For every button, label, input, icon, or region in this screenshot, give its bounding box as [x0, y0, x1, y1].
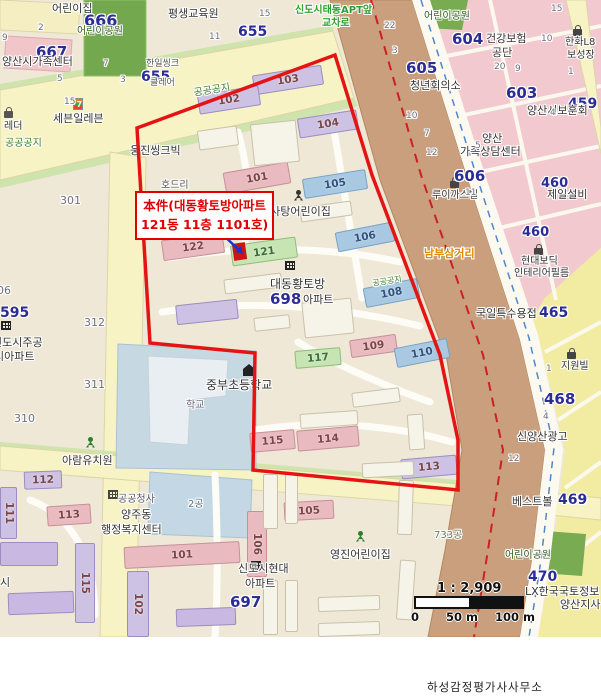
building-footprint [407, 413, 425, 450]
map-label: 606 [454, 168, 485, 185]
map-label: 11 [209, 33, 220, 43]
map-canvas[interactable]: 1031021041011051221211061081091101171151… [0, 0, 601, 637]
building-number: 101 [245, 170, 269, 186]
building-number: 109 [362, 339, 385, 354]
map-label: 아파트 [245, 578, 275, 590]
building-number: 113 [58, 508, 81, 522]
map-label: 655 [238, 25, 267, 40]
apartment-icon [1, 321, 11, 330]
map-label: 양산시가족센터 [2, 56, 73, 68]
map-label: 세븐일레븐 [53, 113, 104, 125]
map-label: 학교 [186, 400, 204, 411]
map-label: 7 [103, 60, 109, 70]
scale-bar-black [469, 598, 522, 607]
map-label: 평생교육원 [168, 8, 219, 20]
daycare-person-icon [294, 190, 303, 201]
shop-bag-icon [534, 248, 543, 255]
map-label: 양산시보훈회 [527, 105, 588, 117]
building-number: 114 [317, 432, 340, 446]
building-footprint [318, 621, 380, 637]
map-label: 312 [84, 317, 105, 329]
map-label: 한화L8 [565, 37, 595, 48]
map-label: 697 [230, 594, 261, 611]
map-label: 3 [120, 76, 126, 86]
building-footprint [397, 480, 414, 535]
building-number: 122 [181, 239, 204, 254]
map-label: 어린이공원 [505, 550, 551, 561]
map-label: 469 [558, 493, 587, 508]
building-111: 111 [0, 487, 17, 539]
building-number: 102 [132, 593, 144, 615]
appraisal-map-page: 1031021041011051221211061081091101171151… [0, 0, 601, 700]
map-label: 595 [0, 306, 29, 321]
building-115: 115 [75, 543, 95, 623]
map-label: 5 [475, 142, 481, 152]
map-label: 신도시태동APT앞 [295, 5, 372, 16]
map-label: 1 [568, 68, 574, 78]
map-label: 웅진씽크빅 [130, 145, 181, 157]
scale-tick-0: 0 [411, 610, 419, 624]
map-label: 9 [515, 65, 521, 75]
building-number: 108 [380, 285, 404, 301]
subject-annotation-box: 本件(대동황토방아파트 121동 11층 1101호) [135, 191, 274, 240]
map-label: 2 [38, 24, 44, 34]
kindergarten-person-icon [86, 437, 95, 448]
map-label: 공공청사 [118, 494, 155, 505]
map-label: 5 [57, 75, 63, 85]
map-label: 15 [64, 98, 75, 108]
building-number: 115 [79, 572, 91, 594]
building-number: 105 [298, 504, 321, 517]
map-label: 공공공지 [5, 138, 42, 149]
scale-bar-white [416, 598, 469, 607]
building-102: 102 [127, 571, 149, 637]
map-label: 양주동 [121, 509, 151, 521]
map-label: 2공 [188, 499, 204, 510]
building-footprint [263, 474, 278, 529]
map-label: 311 [84, 379, 105, 391]
map-label: 영진어린이집 [330, 549, 391, 561]
scale-ratio: 1 : 2,909 [437, 581, 501, 596]
building-number: 110 [410, 345, 434, 361]
map-label: 604 [452, 31, 483, 48]
building-number: 112 [32, 474, 54, 487]
building-113: 113 [46, 503, 91, 526]
map-label: 605 [406, 60, 437, 77]
shop-bag-icon [573, 29, 582, 36]
map-label: 733공 [434, 530, 462, 541]
map-label: 현대보딕 [521, 256, 558, 267]
map-label: 310 [14, 413, 35, 425]
map-label: 어린이공원 [424, 11, 470, 22]
map-label: 15 [551, 5, 562, 15]
map-label: 인테리어필름 [514, 268, 569, 279]
scale-bar [414, 596, 524, 609]
subject-annotation-line2: 121동 11층 1101호) [141, 215, 268, 234]
map-label: 12 [426, 149, 437, 159]
building-footprint [8, 591, 75, 615]
building-footprint [176, 607, 237, 627]
map-label: 레더 [4, 121, 22, 132]
map-label: 가족상담센터 [460, 146, 521, 158]
building-number: 113 [418, 460, 441, 474]
map-label: 15 [259, 10, 270, 20]
map-label: 남부삼거리 [424, 248, 475, 260]
building-number: 115 [261, 434, 284, 448]
map-label: 클레어 [150, 79, 175, 89]
building-112: 112 [24, 470, 63, 489]
building-number: 106 [353, 229, 377, 245]
map-label: 3 [392, 47, 398, 57]
map-label: 11 [465, 189, 476, 199]
map-label: 아파트 [303, 294, 333, 306]
map-label: 10 [406, 112, 417, 122]
building-number: 117 [307, 351, 330, 365]
apartment-icon [285, 261, 295, 270]
building-number: 105 [323, 176, 347, 191]
building-footprint [250, 120, 300, 167]
scale-tick-50: 50 m [446, 610, 478, 624]
scale-indicator: 1 : 2,909 0 50 m 100 m [410, 581, 580, 625]
map-label: 베스트볼 [512, 496, 552, 508]
map-label: 시 [0, 577, 10, 589]
map-label: 제일설비 [547, 189, 587, 201]
shop-bag-icon [4, 111, 13, 118]
map-label: 10 [541, 35, 552, 45]
map-label: 신양산광고 [517, 431, 568, 443]
map-label: 22 [384, 22, 395, 32]
map-label: 468 [544, 391, 575, 408]
map-label: 건강보험 [486, 33, 526, 45]
building-footprint [285, 474, 298, 524]
building-footprint [285, 580, 298, 632]
map-label: 20 [494, 63, 505, 73]
map-label: 06 [0, 285, 11, 297]
map-label: 460 [522, 226, 549, 240]
map-label: 9 [2, 34, 8, 44]
building-115: 115 [249, 429, 296, 453]
daycare-person-icon [356, 531, 365, 542]
building-number: 103 [276, 72, 300, 87]
school-icon [243, 369, 255, 376]
map-label: 신도시현대 [238, 563, 289, 575]
map-label: 행정복지센터 [101, 524, 162, 536]
map-label: 아람유치원 [62, 455, 113, 467]
building-footprint [318, 595, 380, 612]
building-number: 121 [252, 244, 275, 259]
map-label: 4 [543, 413, 549, 423]
map-label: 시아파트 [0, 351, 34, 363]
map-label: 1 [546, 365, 552, 375]
map-label: 한일씽크 [146, 60, 179, 70]
building-footprint [0, 542, 58, 566]
map-label: 어린이공원 [77, 26, 123, 37]
map-label: 4 [550, 109, 556, 119]
appraiser-attribution: 하성감정평가사사무소 [427, 679, 543, 695]
map-label: 698 [270, 291, 301, 308]
map-label: 호드리 [161, 180, 189, 191]
subject-annotation-line1: 本件(대동황토방아파트 [141, 196, 268, 215]
scale-tick-100: 100 m [495, 610, 535, 624]
map-label: 청년회의소 [410, 80, 461, 92]
map-label: 301 [60, 195, 81, 207]
building-number: 111 [3, 502, 15, 524]
map-label: 국일특수용접 [476, 308, 537, 320]
map-label: 양산 [482, 133, 502, 145]
government-office-icon [108, 490, 118, 499]
shop-bag-icon [567, 352, 576, 359]
map-label: 465 [539, 306, 568, 321]
map-label: 603 [506, 85, 537, 102]
map-label: 12 [508, 455, 519, 465]
map-label: 7 [424, 130, 430, 140]
map-label: 보성장 [567, 50, 595, 61]
map-label: 지원빌 [561, 361, 589, 372]
building-footprint [362, 461, 415, 479]
map-label: 공단 [492, 47, 512, 59]
map-label: 중부초등학교 [206, 379, 272, 392]
map-label: 교차로 [322, 18, 350, 29]
building-number: 101 [171, 548, 194, 561]
building-number: 104 [316, 116, 340, 131]
building-number: 106 [251, 533, 263, 555]
map-label: 신도시주공 [0, 337, 43, 349]
